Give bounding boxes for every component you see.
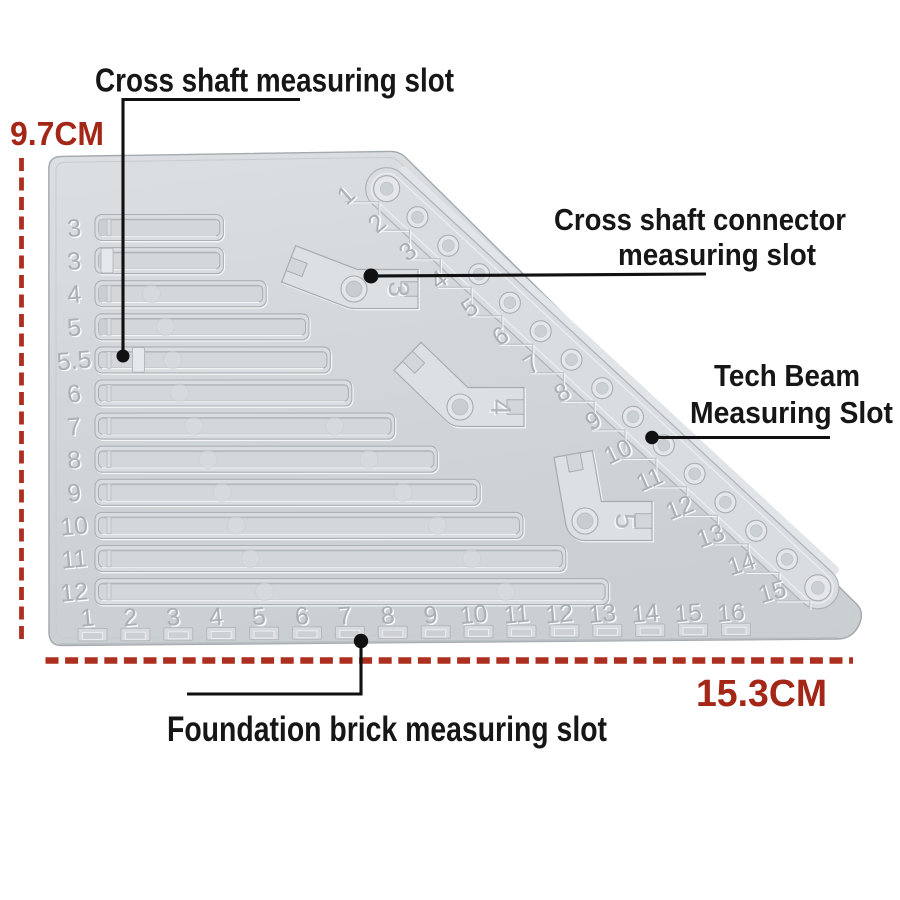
svg-text:measuring slot: measuring slot	[618, 237, 816, 272]
svg-text:6: 6	[66, 379, 82, 408]
svg-text:4: 4	[484, 399, 516, 415]
svg-text:1: 1	[79, 603, 95, 632]
svg-text:16: 16	[716, 598, 746, 628]
svg-text:5: 5	[66, 313, 82, 342]
svg-text:15: 15	[673, 598, 703, 628]
svg-text:Cross shaft measuring slot: Cross shaft measuring slot	[95, 62, 454, 99]
svg-text:13: 13	[587, 599, 617, 629]
svg-text:12: 12	[59, 577, 89, 607]
svg-text:9: 9	[66, 479, 82, 508]
svg-text:6: 6	[294, 602, 310, 631]
svg-text:Foundation brick measuring slo: Foundation brick measuring slot	[167, 710, 607, 749]
svg-text:10: 10	[59, 511, 89, 541]
svg-text:5: 5	[251, 602, 267, 631]
svg-text:8: 8	[379, 601, 395, 630]
svg-text:7: 7	[337, 601, 353, 630]
svg-text:11: 11	[502, 600, 530, 630]
svg-text:Measuring Slot: Measuring Slot	[690, 395, 893, 430]
svg-text:9.7CM: 9.7CM	[10, 115, 104, 152]
svg-text:3: 3	[382, 281, 414, 297]
svg-text:8: 8	[66, 446, 82, 475]
svg-text:3: 3	[66, 214, 82, 243]
svg-text:7: 7	[66, 413, 82, 442]
svg-text:9: 9	[422, 601, 438, 630]
svg-text:Cross shaft connector: Cross shaft connector	[554, 202, 846, 237]
svg-text:5: 5	[609, 513, 641, 529]
svg-text:15.3CM: 15.3CM	[696, 673, 827, 715]
svg-text:2: 2	[122, 603, 138, 632]
svg-text:3: 3	[165, 603, 181, 632]
svg-text:4: 4	[208, 602, 224, 631]
svg-text:4: 4	[66, 280, 82, 309]
svg-text:3: 3	[66, 247, 82, 276]
svg-text:14: 14	[630, 598, 660, 628]
svg-text:5.5: 5.5	[56, 345, 93, 376]
svg-text:11: 11	[60, 544, 88, 574]
svg-text:10: 10	[458, 600, 488, 630]
svg-text:12: 12	[544, 599, 574, 629]
svg-text:Tech Beam: Tech Beam	[714, 358, 860, 393]
